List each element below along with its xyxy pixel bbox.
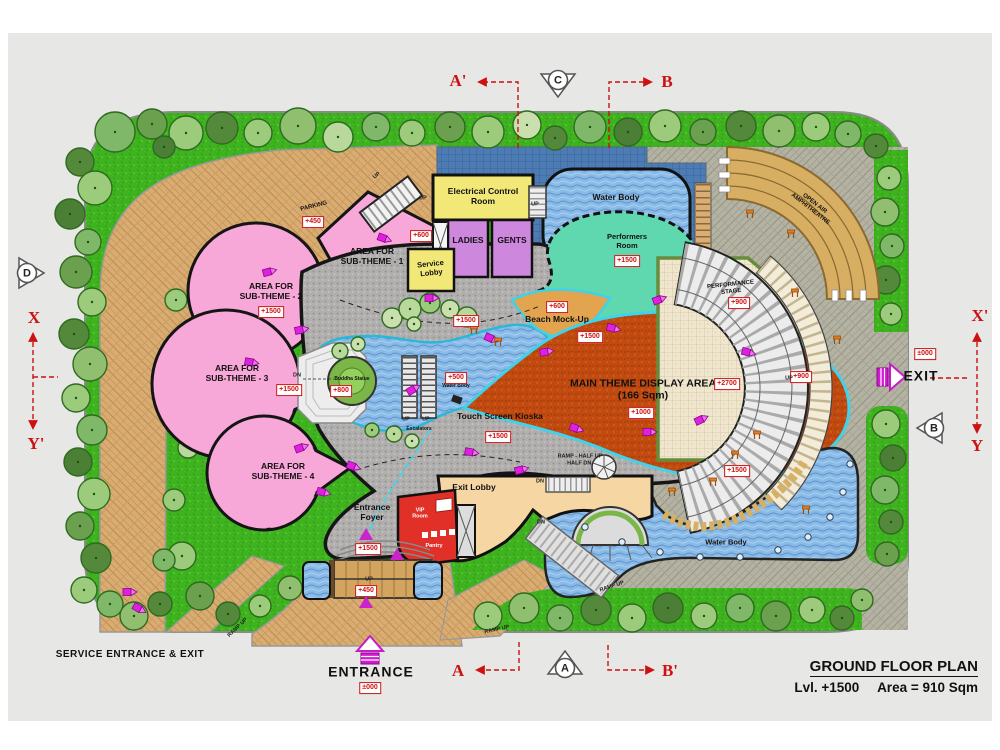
tree-icon	[543, 126, 567, 150]
tree-icon	[75, 229, 101, 255]
tree-icon	[726, 594, 754, 622]
bush-icon	[441, 300, 459, 318]
electrical-control-room	[433, 175, 533, 220]
tree-icon	[880, 234, 904, 258]
tree-icon	[206, 112, 238, 144]
floor-plan-drawing	[0, 0, 1000, 750]
bush-icon	[332, 343, 348, 359]
tree-icon	[574, 111, 606, 143]
tree-icon	[62, 384, 90, 412]
tree-icon	[547, 605, 573, 631]
tree-icon	[802, 113, 830, 141]
plan-title: GROUND FLOOR PLAN	[810, 658, 978, 677]
tree-icon	[278, 576, 302, 600]
tree-icon	[851, 589, 873, 611]
tree-icon	[581, 595, 611, 625]
tree-icon	[81, 543, 111, 573]
tree-icon	[55, 199, 85, 229]
tree-icon	[761, 601, 791, 631]
tree-icon	[877, 166, 901, 190]
service-lobby	[408, 249, 454, 291]
bush-icon	[407, 317, 421, 331]
tree-icon	[618, 604, 646, 632]
tree-icon	[249, 595, 271, 617]
tree-icon	[186, 582, 214, 610]
tree-icon	[880, 303, 902, 325]
tree-icon	[399, 120, 425, 146]
tree-icon	[799, 597, 825, 623]
tree-icon	[97, 591, 123, 617]
bush-icon	[399, 298, 421, 320]
tree-icon	[690, 119, 716, 145]
tree-icon	[64, 448, 92, 476]
tree-icon	[66, 512, 94, 540]
tree-icon	[614, 118, 642, 146]
tree-icon	[879, 510, 903, 534]
tree-icon	[77, 415, 107, 445]
tree-icon	[59, 319, 89, 349]
tree-icon	[153, 136, 175, 158]
bush-icon	[386, 426, 402, 442]
tree-icon	[78, 478, 110, 510]
plan-level: Lvl. +1500	[794, 680, 859, 695]
bush-icon	[351, 337, 365, 351]
tree-icon	[165, 289, 187, 311]
tree-icon	[691, 603, 717, 629]
tree-icon	[763, 115, 795, 147]
stairs-gents	[529, 186, 546, 218]
tree-icon	[864, 134, 888, 158]
plan-area: Area = 910 Sqm	[877, 680, 978, 695]
tree-icon	[649, 110, 681, 142]
tree-icon	[435, 112, 465, 142]
tree-icon	[509, 593, 539, 623]
tree-icon	[60, 256, 92, 288]
entrance-pool-right	[414, 562, 442, 599]
tree-icon	[73, 347, 107, 381]
bush-icon	[405, 434, 419, 448]
tree-icon	[726, 111, 756, 141]
stairs-exit-lobby	[546, 477, 590, 492]
tree-icon	[871, 476, 899, 504]
tree-icon	[323, 122, 353, 152]
gents-room	[492, 220, 532, 277]
tree-icon	[871, 198, 899, 226]
tree-icon	[653, 593, 683, 623]
tree-icon	[280, 108, 316, 144]
tree-icon	[78, 288, 106, 316]
tree-icon	[163, 489, 185, 511]
tree-icon	[875, 542, 899, 566]
tree-icon	[95, 112, 135, 152]
tree-icon	[148, 592, 172, 616]
tree-icon	[513, 111, 541, 139]
tree-icon	[71, 577, 97, 603]
tree-icon	[835, 121, 861, 147]
tree-icon	[137, 109, 167, 139]
tree-icon	[78, 171, 112, 205]
tree-icon	[472, 116, 504, 148]
tree-icon	[830, 606, 854, 630]
tree-icon	[880, 445, 906, 471]
tree-icon	[244, 119, 272, 147]
bush-icon	[457, 307, 477, 327]
tree-icon	[872, 410, 900, 438]
lift-shaft-foyer	[457, 505, 475, 557]
spiral-stair	[592, 455, 616, 479]
tree-icon	[216, 602, 240, 626]
bush-icon	[365, 423, 379, 437]
tree-icon	[362, 113, 390, 141]
entrance-pool-left	[303, 562, 330, 599]
tree-icon	[474, 602, 502, 630]
tree-icon	[153, 549, 175, 571]
title-block: GROUND FLOOR PLAN Lvl. +1500 Area = 910 …	[780, 658, 978, 695]
floor-plan-canvas: Electrical Control RoomLADIESGENTSServic…	[0, 0, 1000, 750]
